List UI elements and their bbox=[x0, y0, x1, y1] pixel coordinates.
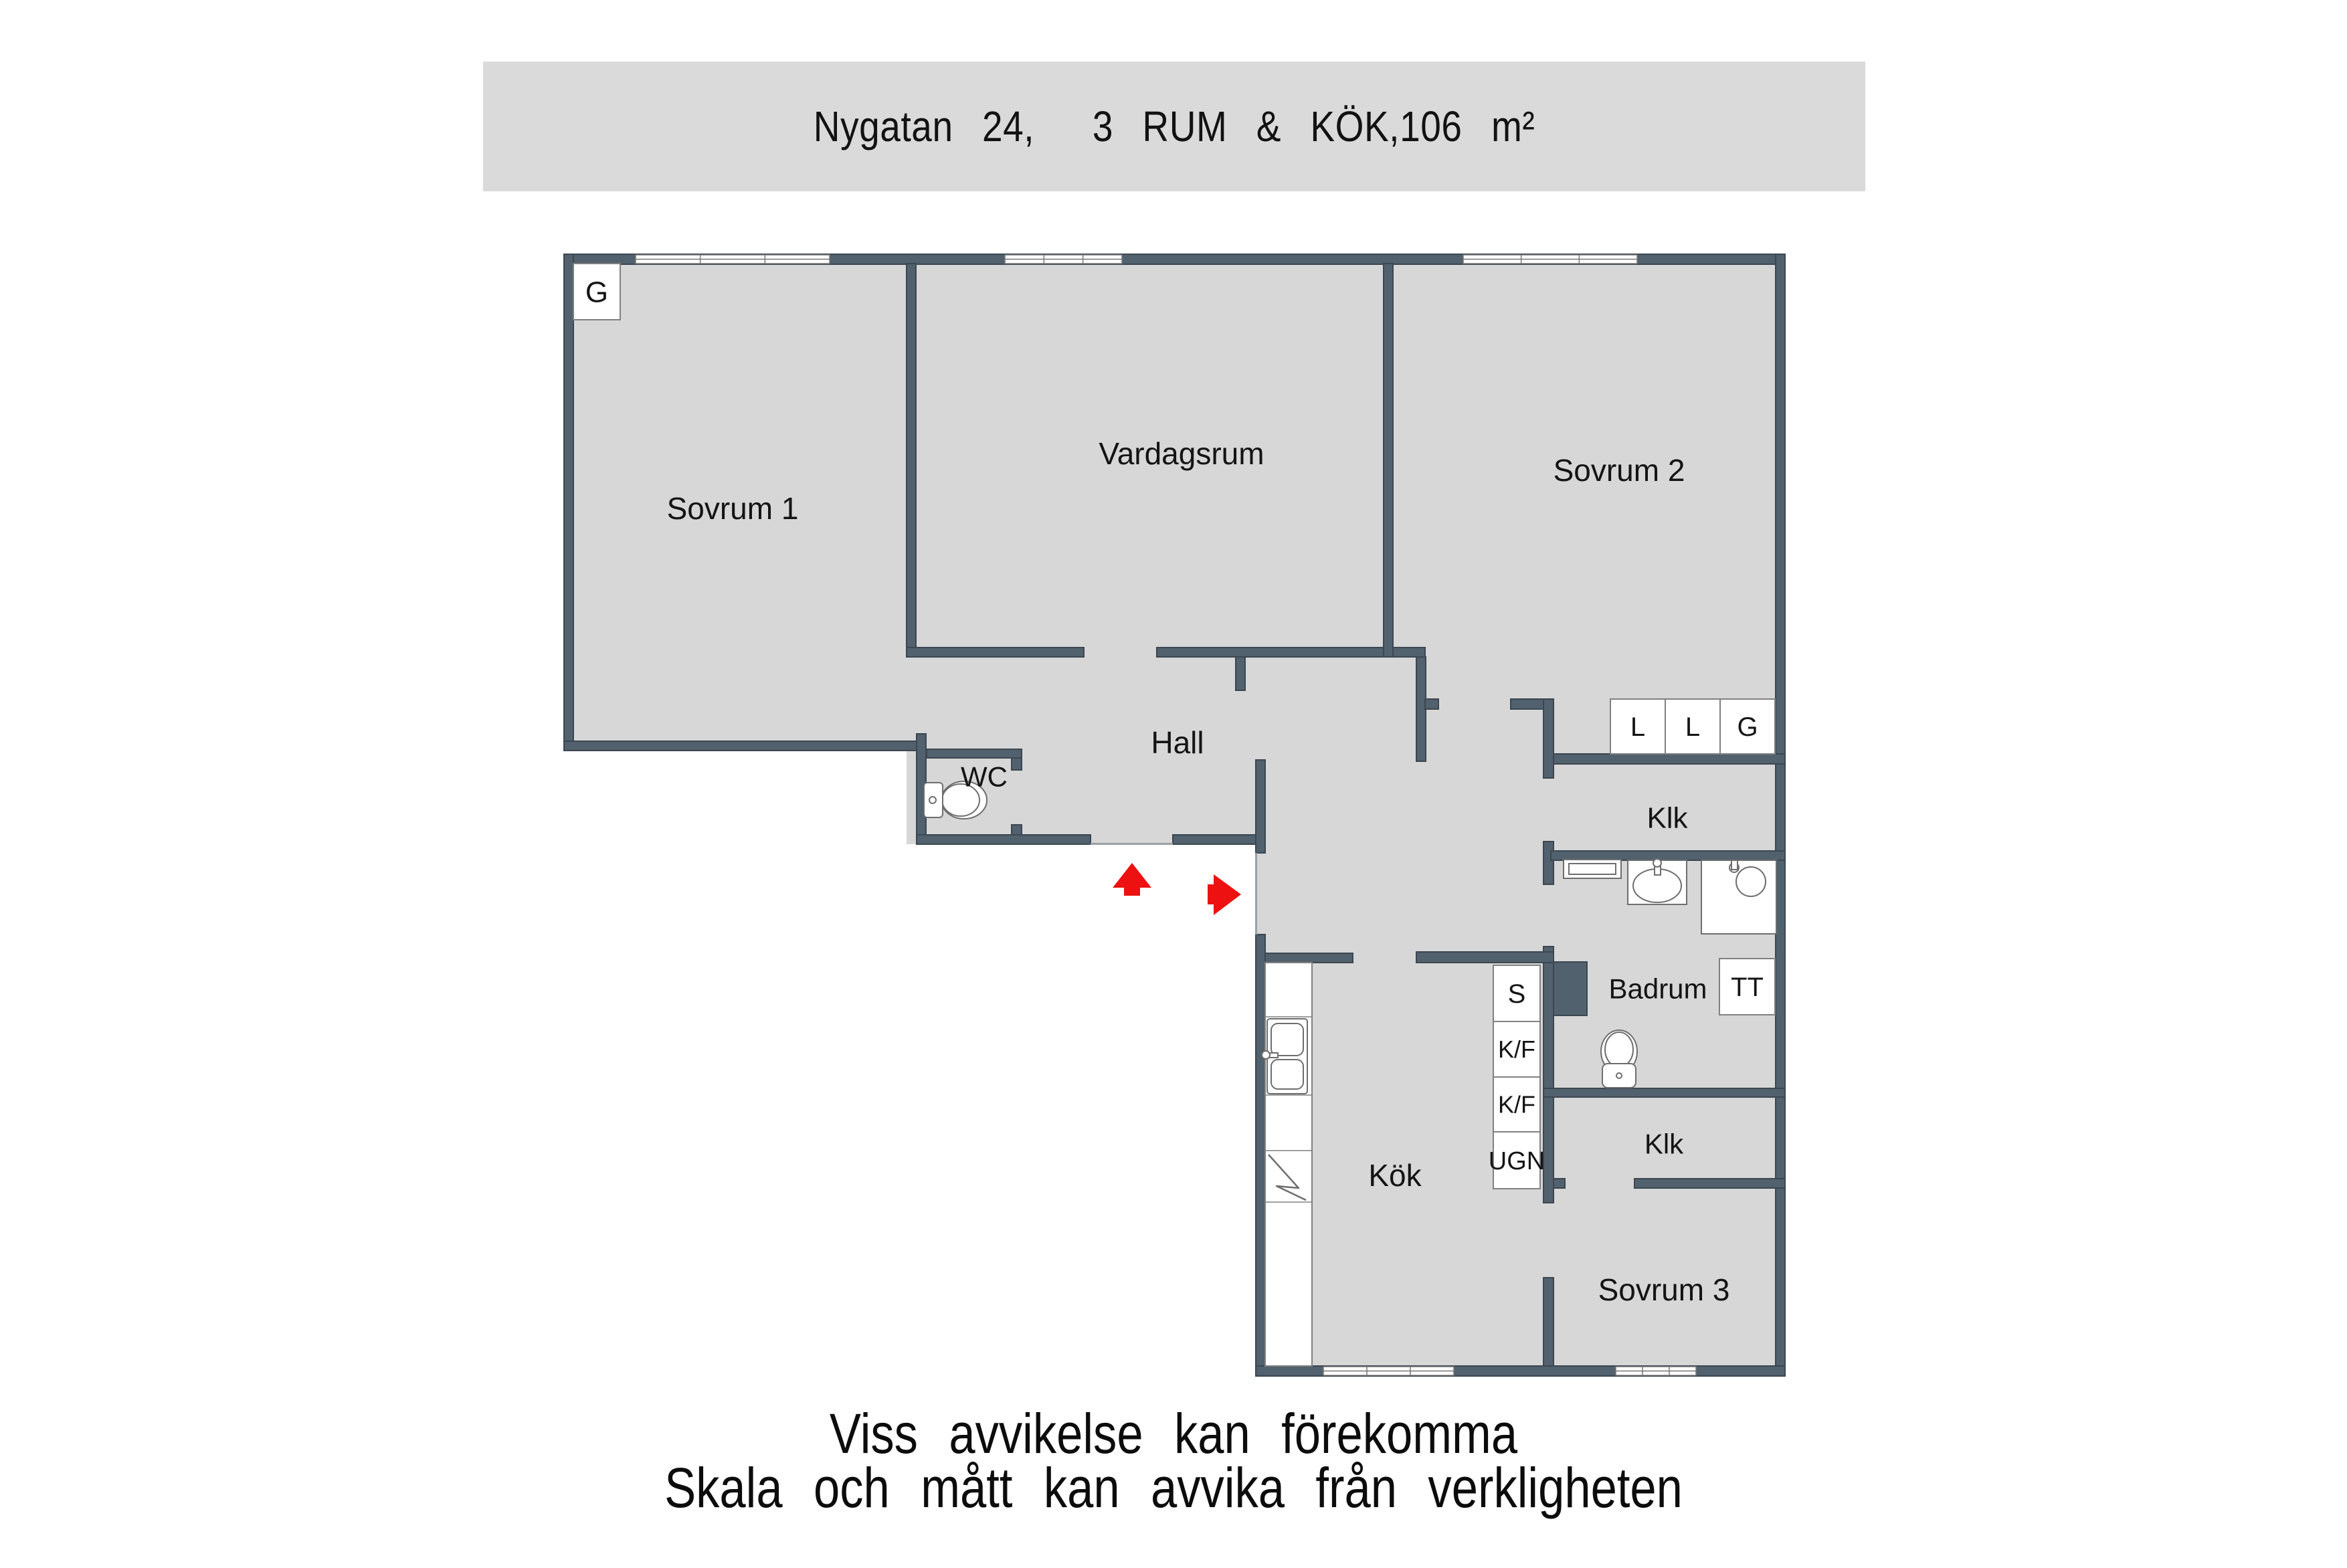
wall-klk2-jamb bbox=[1554, 1179, 1565, 1188]
appliance-s-label: S bbox=[1508, 979, 1526, 1009]
appliance-tt-dryer-label: TT bbox=[1731, 973, 1764, 1002]
entrance-arrow-up bbox=[1113, 863, 1151, 896]
closet-g-sovrum1-label: G bbox=[585, 276, 608, 308]
disclaimer-line-2: Skala och mått kan avvika från verklighe… bbox=[188, 1459, 2160, 1516]
appliance-kf-1-label: K/F bbox=[1498, 1036, 1535, 1063]
wall-badrum-shaft bbox=[1554, 962, 1587, 1015]
floorplan-container: GLLGSK/FK/FUGNTTSovrum 1VardagsrumSovrum… bbox=[0, 0, 2347, 1565]
wall-sovrum1-divider bbox=[907, 264, 916, 657]
label-klk-2: Klk bbox=[1645, 1129, 1684, 1160]
wall-kok-top-right bbox=[1416, 952, 1554, 963]
wall-entry-right-ext bbox=[1173, 835, 1256, 844]
kitchen-sink-icon-2 bbox=[1271, 1060, 1303, 1089]
closet-l-1-label: L bbox=[1630, 712, 1645, 742]
wall-vardagsrum-bottom-l bbox=[907, 648, 1084, 657]
kitchen-sink-icon-1 bbox=[1271, 1023, 1303, 1056]
wall-hall-jamb bbox=[1236, 657, 1245, 690]
appliance-kf-2-label: K/F bbox=[1498, 1091, 1535, 1118]
wall-sovrum1-bottom bbox=[564, 741, 921, 751]
appliance-ugn-label: UGN bbox=[1489, 1147, 1545, 1175]
badrum-sink-icon-3 bbox=[1653, 859, 1661, 867]
label-kok: Kök bbox=[1368, 1158, 1422, 1193]
wall-wc-jamb-top bbox=[1012, 758, 1022, 770]
wall-kok-top-left bbox=[1265, 953, 1353, 963]
closet-g-sovrum2-label: G bbox=[1737, 712, 1758, 742]
label-klk-1: Klk bbox=[1647, 801, 1688, 834]
entrance-arrow-right bbox=[1208, 874, 1241, 915]
label-badrum: Badrum bbox=[1608, 973, 1707, 1005]
label-wc: WC bbox=[961, 761, 1008, 793]
wall-exterior-right bbox=[1776, 254, 1785, 1376]
wall-hall-east bbox=[1416, 657, 1426, 761]
wall-wc-top bbox=[927, 749, 1022, 758]
kitchen-sink-icon-4 bbox=[1262, 1051, 1270, 1059]
wall-klk1-left-upper bbox=[1543, 699, 1554, 778]
washing-machine-icon-1 bbox=[1736, 867, 1766, 896]
wall-wc-jamb-bottom bbox=[1012, 825, 1022, 835]
wall-exterior-left bbox=[564, 254, 573, 751]
disclaimer-line-1: Viss avvikelse kan förekomma bbox=[188, 1405, 2160, 1462]
wall-klk2-bottom bbox=[1634, 1179, 1785, 1188]
badrum-toilet-icon-3 bbox=[1616, 1073, 1622, 1078]
radiator-icon-1 bbox=[1569, 864, 1616, 874]
wall-sovrum3-left bbox=[1543, 1278, 1554, 1366]
wall-wing-left-upper bbox=[1256, 760, 1265, 853]
label-sovrum-2: Sovrum 2 bbox=[1554, 453, 1685, 488]
wall-klk1-bottom bbox=[1551, 851, 1785, 860]
edge-entry-threshold bbox=[1091, 843, 1173, 845]
wall-hall-bottom-ext bbox=[917, 835, 1091, 844]
wall-badrum-bottom bbox=[1543, 1088, 1785, 1097]
label-sovrum-1: Sovrum 1 bbox=[667, 491, 799, 526]
edge-entry-side bbox=[1255, 853, 1257, 935]
label-sovrum-3: Sovrum 3 bbox=[1598, 1272, 1730, 1307]
label-hall: Hall bbox=[1151, 725, 1204, 760]
wall-sovrum2-door-stub bbox=[1425, 699, 1438, 709]
badrum-toilet-icon-1 bbox=[1605, 1032, 1633, 1067]
wall-sovrum2-divider bbox=[1384, 264, 1393, 657]
wall-wing-left-lower bbox=[1256, 935, 1265, 1375]
washing-machine-icon bbox=[1701, 860, 1776, 934]
wc-toilet-icon-3 bbox=[929, 797, 936, 803]
label-vardagsrum: Vardagsrum bbox=[1099, 436, 1264, 471]
washing-machine-icon-3 bbox=[1731, 860, 1738, 870]
wall-klk1-left-jamb bbox=[1543, 842, 1554, 884]
wall-closet-row-bottom bbox=[1554, 754, 1785, 764]
floorplan-svg: GLLGSK/FK/FUGNTTSovrum 1VardagsrumSovrum… bbox=[0, 0, 2347, 1565]
closet-l-2-label: L bbox=[1685, 712, 1700, 742]
wall-badrum-left bbox=[1543, 947, 1554, 1203]
